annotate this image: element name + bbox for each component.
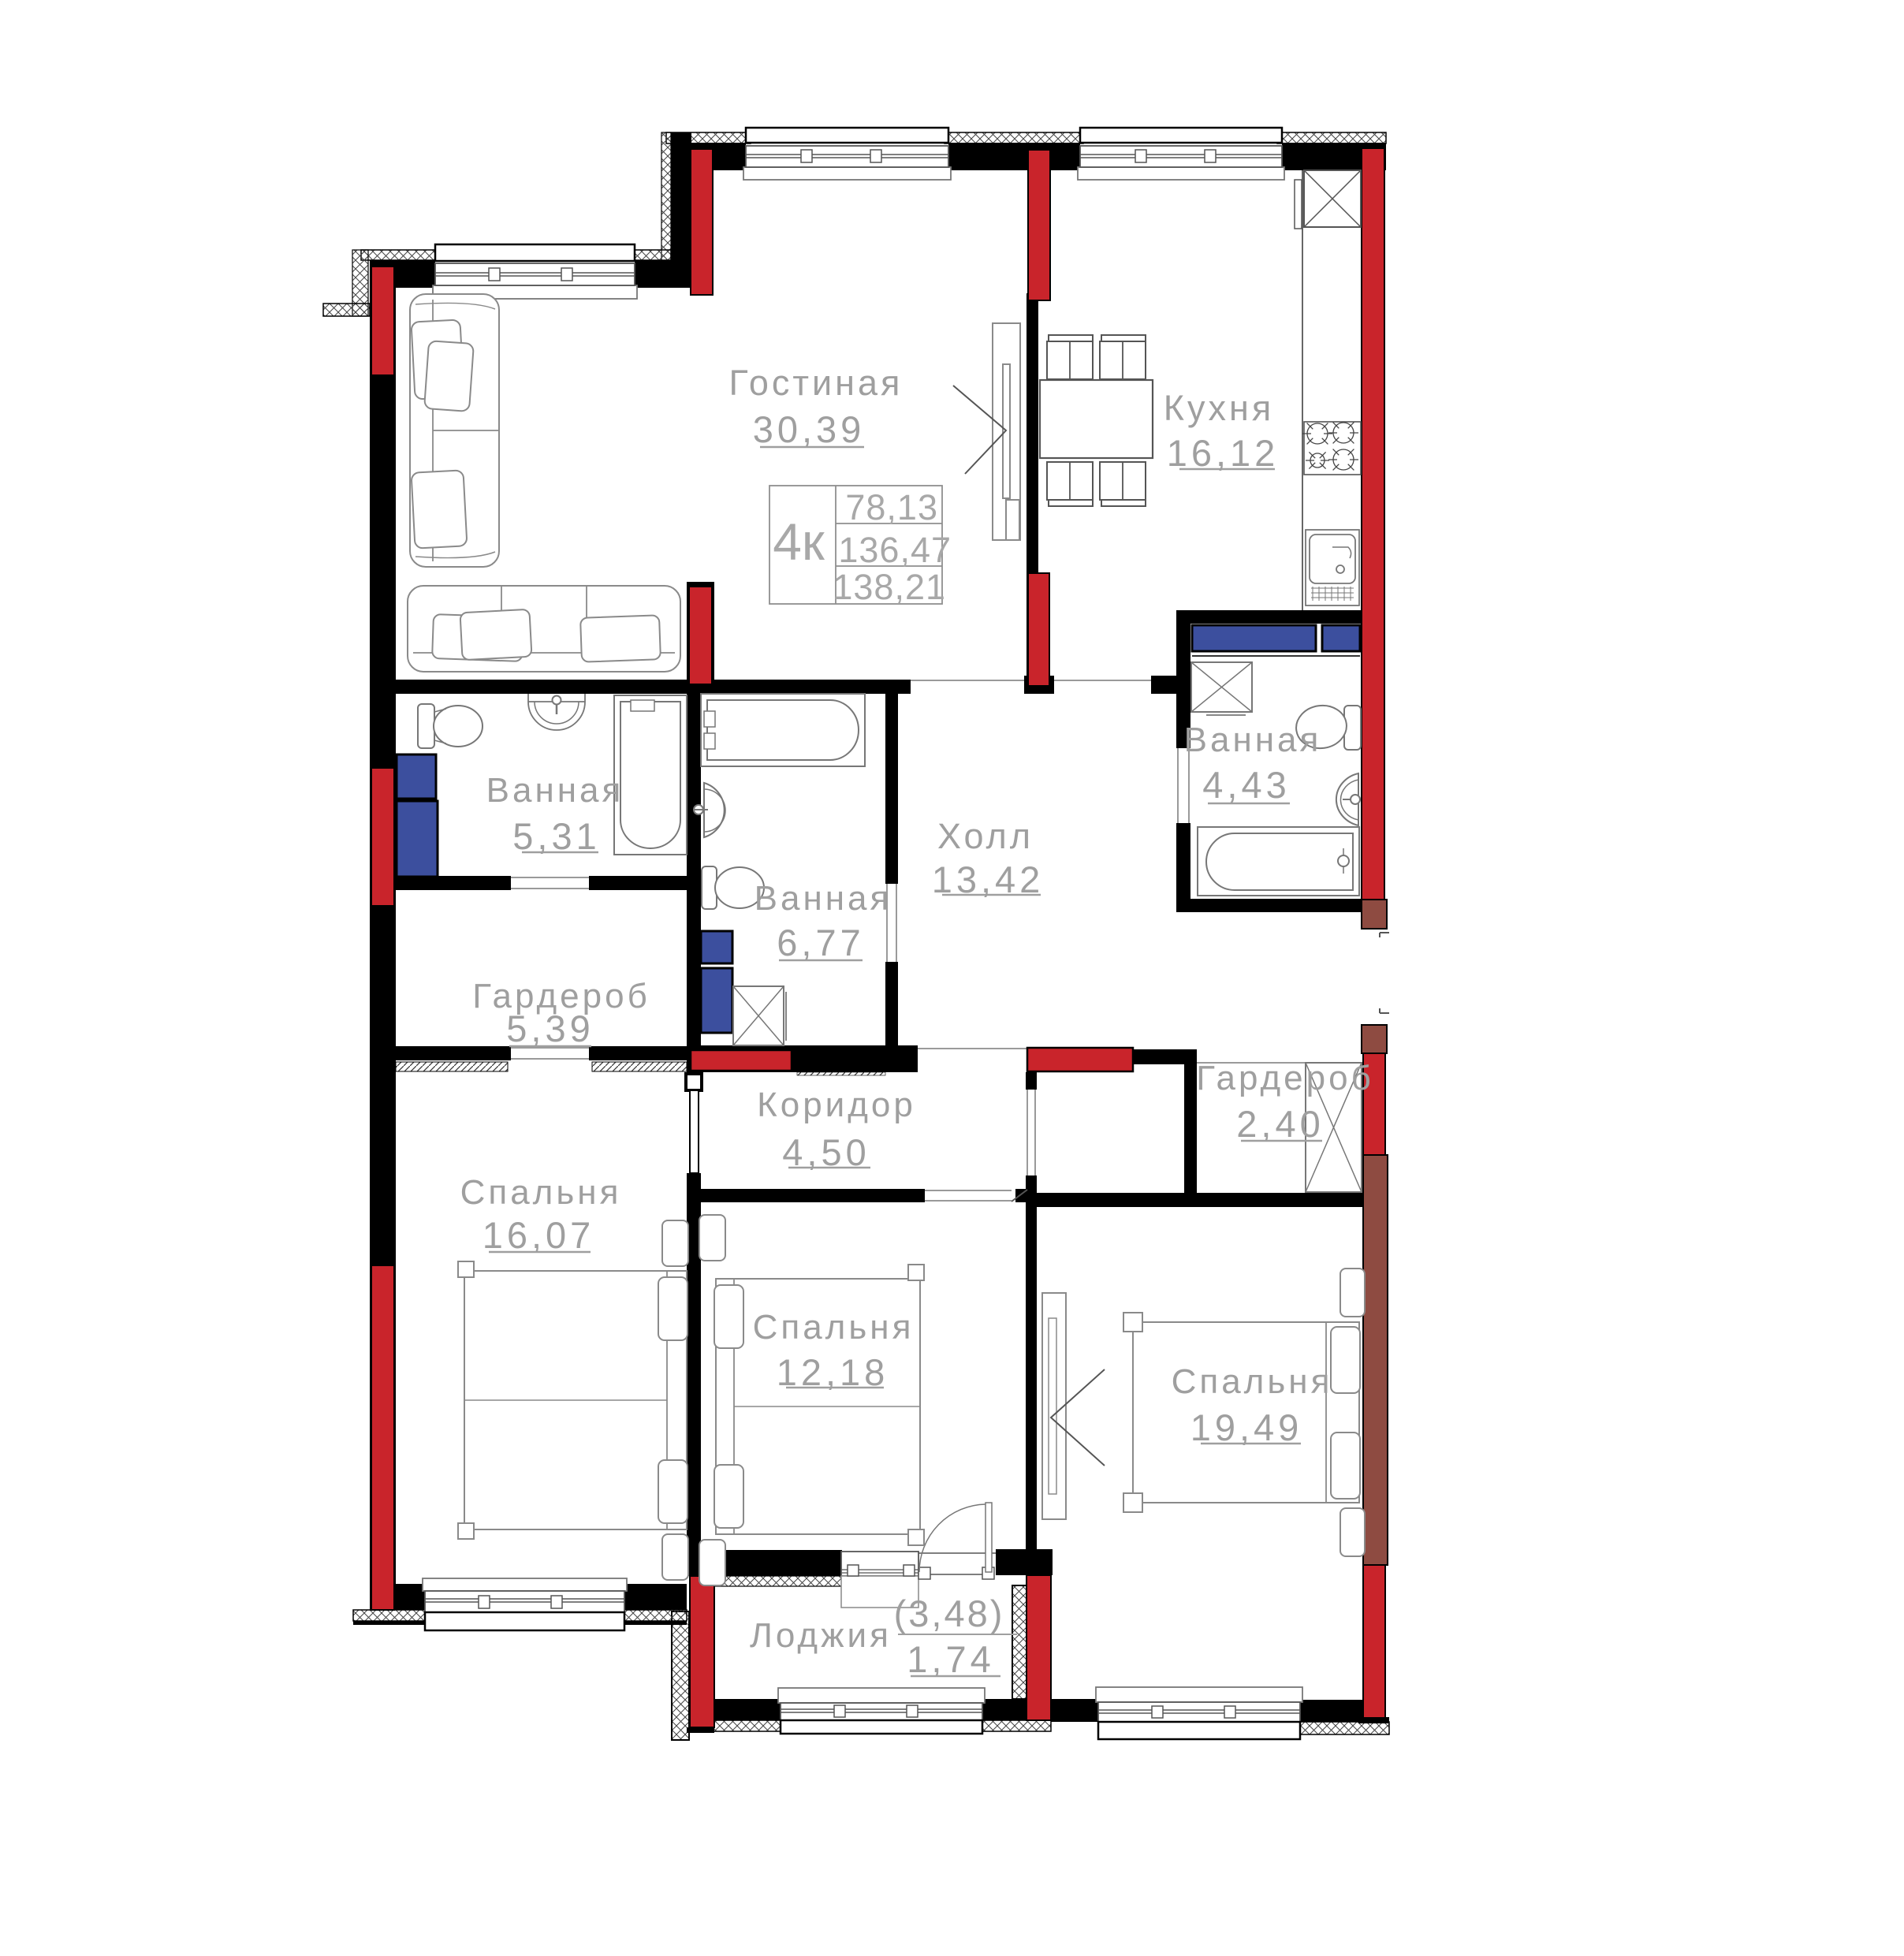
svg-text:Спальня: Спальня <box>753 1308 915 1347</box>
svg-text:78,13: 78,13 <box>845 487 938 527</box>
svg-text:4,43: 4,43 <box>1202 764 1290 806</box>
svg-text:Коридор: Коридор <box>757 1086 916 1124</box>
svg-text:1,74: 1,74 <box>907 1638 994 1680</box>
svg-text:136,47: 136,47 <box>838 530 952 570</box>
svg-text:2,40: 2,40 <box>1236 1103 1324 1145</box>
svg-text:138,21: 138,21 <box>833 567 946 607</box>
svg-text:Холл: Холл <box>937 816 1034 856</box>
svg-text:(3,48): (3,48) <box>894 1593 1005 1634</box>
svg-text:30,39: 30,39 <box>753 408 866 450</box>
svg-text:5,31: 5,31 <box>512 815 600 857</box>
svg-text:16,07: 16,07 <box>483 1214 595 1256</box>
svg-text:6,77: 6,77 <box>777 922 864 963</box>
svg-text:Ванная: Ванная <box>1184 721 1322 759</box>
svg-text:Кухня: Кухня <box>1164 388 1274 428</box>
svg-text:19,49: 19,49 <box>1190 1406 1303 1448</box>
svg-text:Гардероб: Гардероб <box>1196 1059 1374 1097</box>
svg-text:Ванная: Ванная <box>755 879 892 918</box>
svg-text:Спальня: Спальня <box>1172 1362 1333 1401</box>
svg-text:Спальня: Спальня <box>460 1173 622 1212</box>
svg-text:16,12: 16,12 <box>1167 432 1280 474</box>
svg-text:5,39: 5,39 <box>506 1008 594 1049</box>
svg-text:Гостиная: Гостиная <box>729 363 904 403</box>
svg-text:Ванная: Ванная <box>486 771 624 810</box>
svg-text:Лоджия: Лоджия <box>750 1616 892 1655</box>
svg-text:4к: 4к <box>773 512 825 571</box>
